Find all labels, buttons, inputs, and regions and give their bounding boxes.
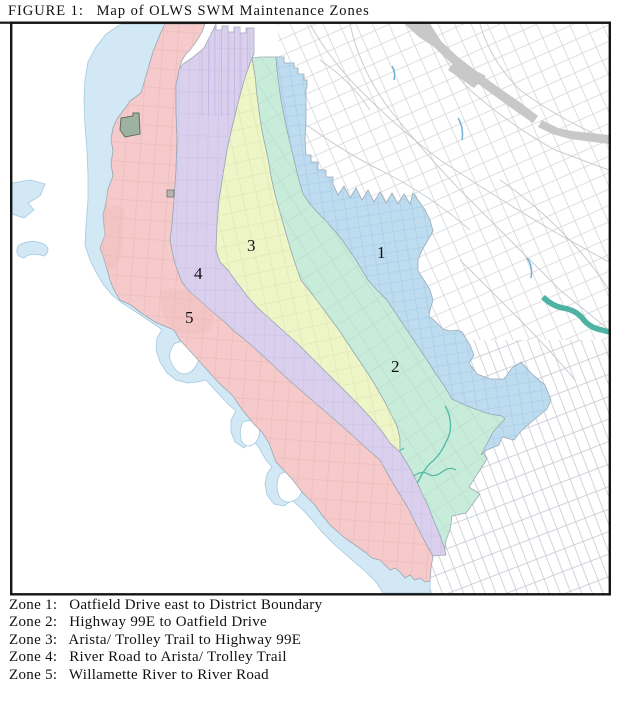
svg-text:2: 2	[391, 357, 400, 376]
svg-text:3: 3	[247, 236, 256, 255]
svg-text:1: 1	[377, 243, 386, 262]
svg-text:5: 5	[185, 308, 194, 327]
svg-text:4: 4	[194, 264, 203, 283]
